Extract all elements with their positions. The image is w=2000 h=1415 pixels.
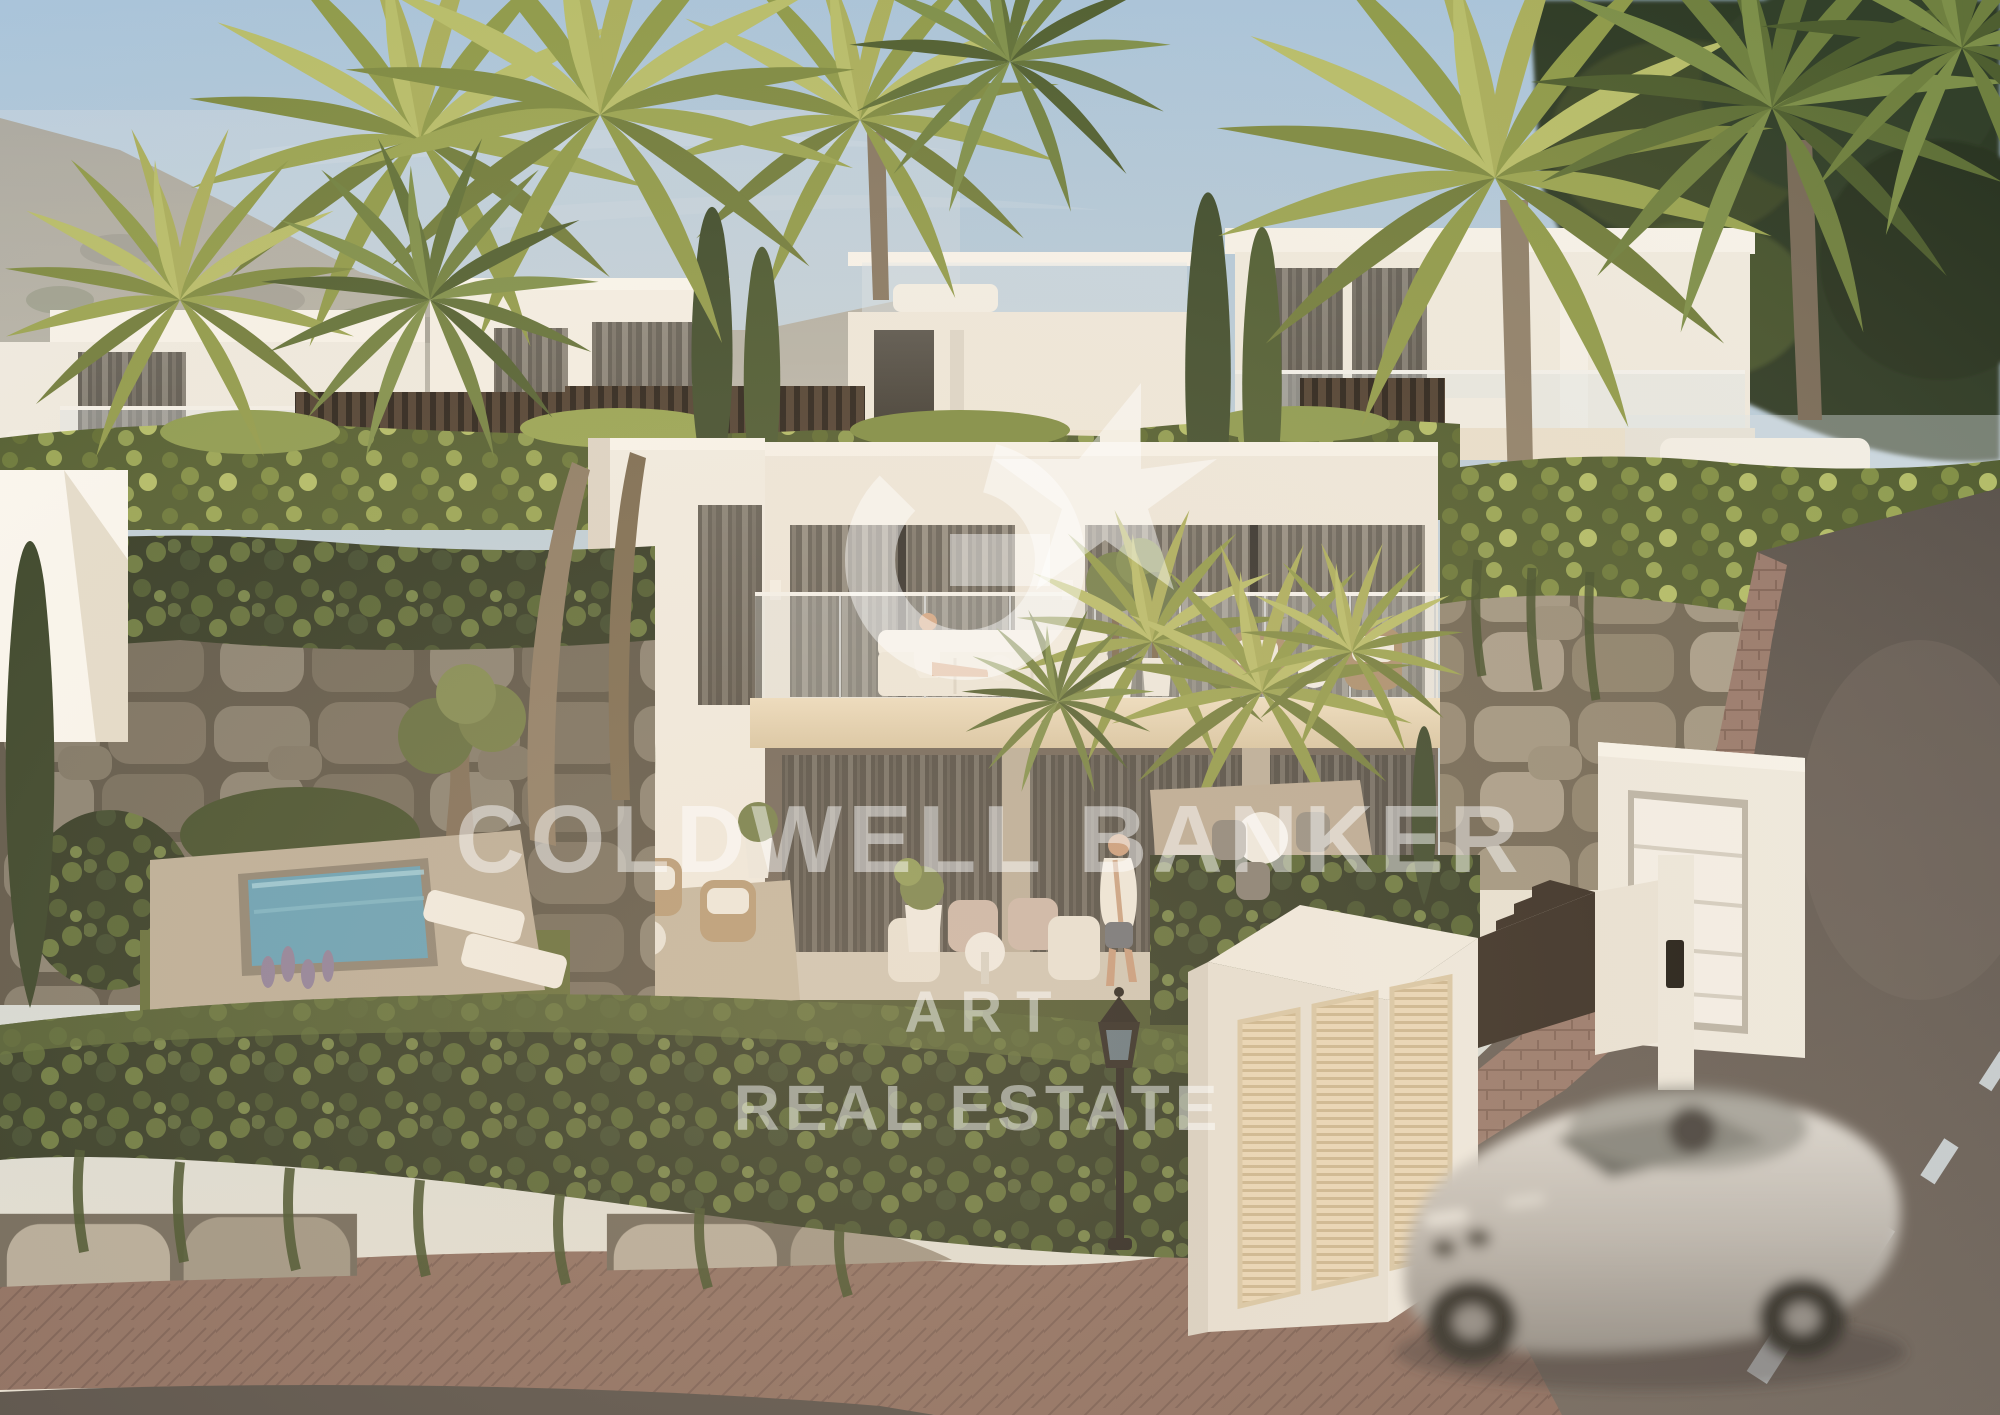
watermark-brand-text: COLDWELL BANKER — [455, 786, 1525, 893]
watermark-realestate-text: REAL ESTATE — [734, 1072, 1223, 1144]
render-image: COLDWELL BANKER ART REAL ESTATE — [0, 0, 2000, 1415]
watermark-art-text: ART — [904, 980, 1065, 1045]
warm-haze-overlay — [0, 0, 2000, 1415]
